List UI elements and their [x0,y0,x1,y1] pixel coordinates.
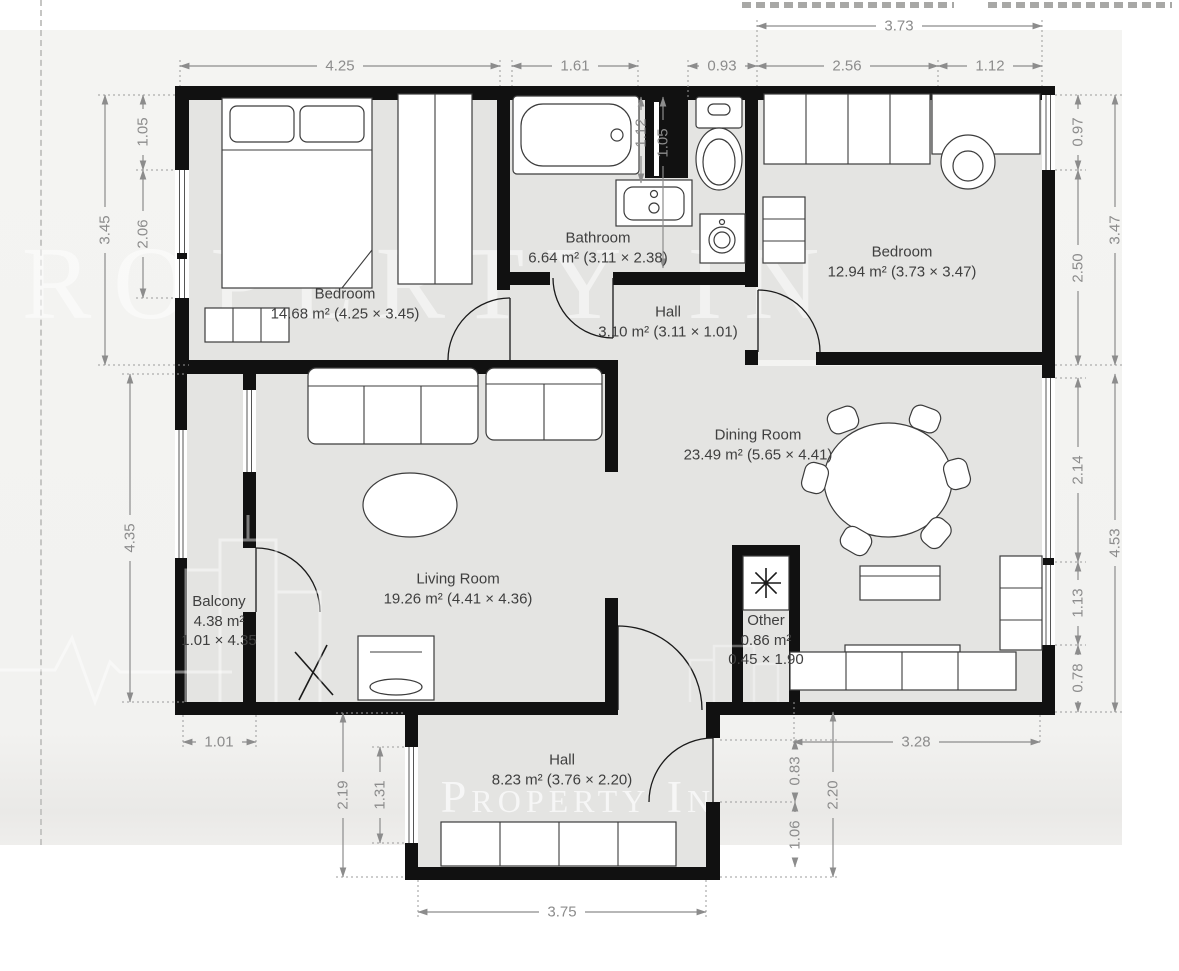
dim-label-h220: 2.20 [825,780,842,809]
watermark-text-bottom: Property In [441,771,715,822]
dim-label-r250: 2.50 [1070,253,1087,282]
window-balcony-living [243,390,256,472]
window-dining-right [1042,378,1055,645]
dimension-r078: 0.78 [1070,645,1087,712]
tv-bench [790,645,1016,690]
dimension-l105: 1.05 [135,95,152,170]
dim-label-h106: 1.06 [787,820,804,849]
dimension-l131: 1.31 [372,747,389,843]
dim-label-bath112: 1.12 [633,118,650,147]
dim-label-h328: 3.28 [901,734,930,751]
chair-round [941,135,995,189]
dim-label-r078: 0.78 [1070,663,1087,692]
sideboard [860,566,940,600]
dimension-r453: 4.53 [1107,374,1124,712]
dimension-l435: 4.35 [122,374,139,702]
dimension-t112: 1.12 [938,58,1042,75]
window-bedroom1-left [175,170,189,298]
tv-stand [358,636,434,700]
dimension-h375: 3.75 [418,904,706,921]
dimension-t373: 3.73 [757,18,1042,35]
dim-label-l131: 1.31 [372,780,389,809]
dim-label-h375: 3.75 [547,904,576,921]
cabinet-tall [1000,556,1042,650]
dim-label-r214: 2.14 [1070,455,1087,484]
bed [222,98,372,288]
dimension-r347: 3.47 [1107,95,1124,365]
dim-label-t161: 1.61 [560,58,589,75]
dim-label-l435: 4.35 [122,523,139,552]
sofa-small [486,368,602,440]
hall-cabinet [441,822,676,866]
dim-label-r453: 4.53 [1107,528,1124,557]
dimension-h328: 3.28 [793,734,1040,751]
dimension-h083: 0.83 [787,740,804,802]
dim-label-bath105: 1.05 [655,128,672,157]
dresser [205,308,289,342]
window-bedroom2-right [1042,95,1055,170]
dimension-h220: 2.20 [825,712,842,877]
wardrobe [398,94,472,284]
wardrobe-bedroom2 [764,94,930,164]
dimension-t093: 0.93 [688,58,757,75]
dim-label-t112: 1.12 [975,58,1004,75]
dimension-t161: 1.61 [512,58,638,75]
bathtub [513,96,639,174]
dim-label-r113: 1.13 [1070,588,1087,617]
dimension-r214: 2.14 [1070,378,1087,562]
window-balcony-left [175,430,187,558]
dim-label-t373: 3.73 [884,18,913,35]
window-hall-left [405,747,418,843]
dim-label-t256: 2.56 [832,58,861,75]
toilet [696,97,742,190]
dimension-l219: 2.19 [335,713,352,877]
shelf [763,197,805,263]
boiler-closet [743,556,789,610]
dimension-r250: 2.50 [1070,170,1087,365]
sink [616,180,692,226]
dim-label-h083: 0.83 [787,756,804,785]
washing-machine [700,214,745,263]
dim-label-t425: 4.25 [325,58,354,75]
snowflake-icon [751,568,781,598]
floor-plan-screenshot: PROPERTY IN Property In [0,0,1179,971]
dimension-t425: 4.25 [180,58,500,75]
sofa-large [308,368,478,444]
dim-label-r347: 3.47 [1107,215,1124,244]
dim-label-l345: 3.45 [97,215,114,244]
dimension-h106: 1.06 [787,802,804,867]
dim-label-l105: 1.05 [135,117,152,146]
dimension-b101: 1.01 [183,734,256,751]
dim-label-t093: 0.93 [707,58,736,75]
dim-label-b101: 1.01 [204,734,233,751]
dimension-t256: 2.56 [757,58,938,75]
dim-label-r097: 0.97 [1070,117,1087,146]
floor-plan-canvas: PROPERTY IN Property In [0,0,1179,971]
coffee-table [363,473,457,537]
dim-label-l219: 2.19 [335,780,352,809]
dimension-r097: 0.97 [1070,95,1087,170]
dim-label-l206: 2.06 [135,219,152,248]
dimension-r113: 1.13 [1070,562,1087,645]
